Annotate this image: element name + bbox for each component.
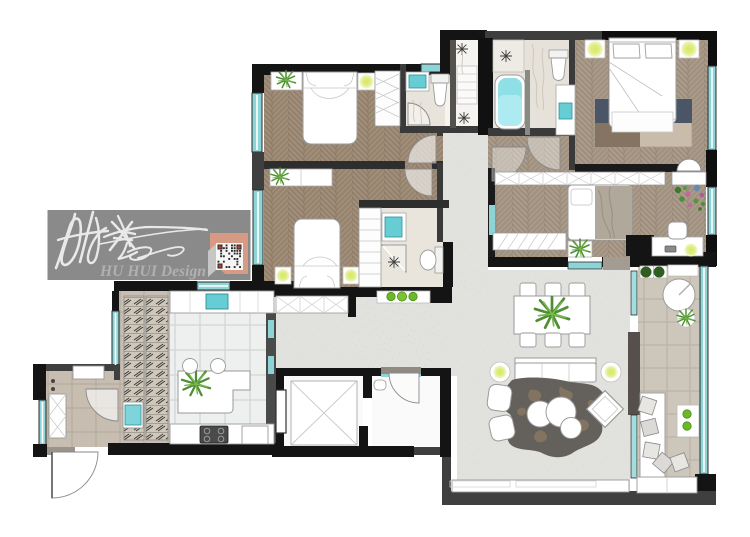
- svg-text:HU HUI Design: HU HUI Design: [99, 263, 206, 280]
